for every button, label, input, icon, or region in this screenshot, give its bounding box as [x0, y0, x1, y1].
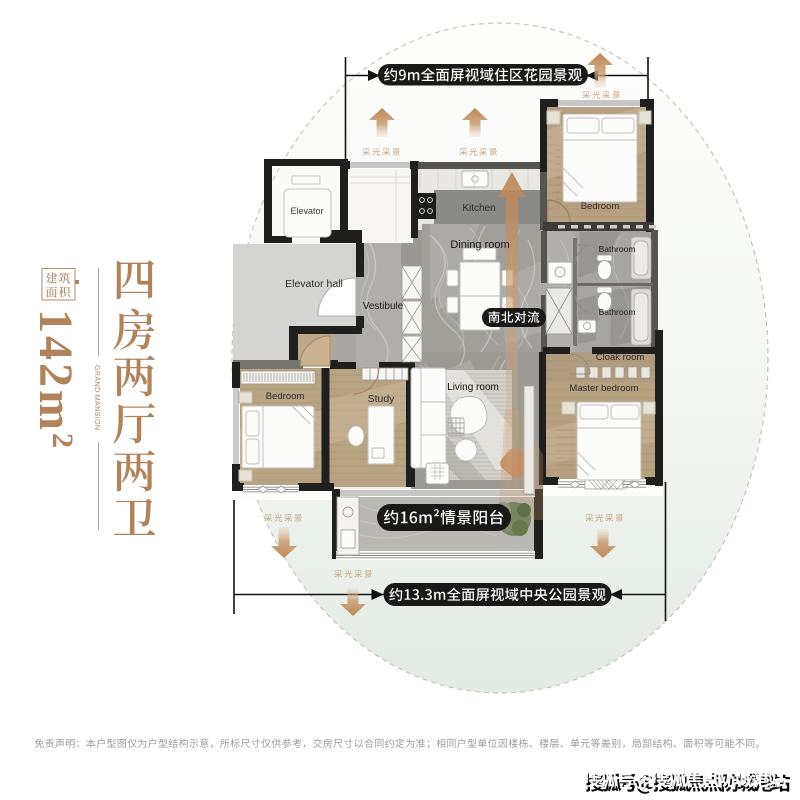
svg-text:Kitchen: Kitchen	[462, 203, 495, 214]
svg-text:Cloak room: Cloak room	[596, 352, 645, 363]
svg-text:Vestibule: Vestibule	[363, 301, 404, 312]
svg-text:142m2: 142m2	[29, 309, 82, 451]
svg-text:Bedroom: Bedroom	[266, 391, 305, 402]
svg-text:Living room: Living room	[447, 382, 499, 393]
svg-text:Elevator: Elevator	[290, 206, 323, 216]
svg-text:Bathroom: Bathroom	[599, 307, 636, 317]
svg-text:Master bedroom: Master bedroom	[569, 383, 638, 394]
svg-text:Bedroom: Bedroom	[581, 201, 620, 212]
svg-text:Elevator hall: Elevator hall	[285, 278, 343, 290]
svg-text:Dining room: Dining room	[450, 239, 509, 251]
svg-text:Bathroom: Bathroom	[599, 244, 636, 254]
svg-text:GRAND MANSION: GRAND MANSION	[93, 365, 102, 430]
svg-text:Study: Study	[368, 393, 396, 405]
